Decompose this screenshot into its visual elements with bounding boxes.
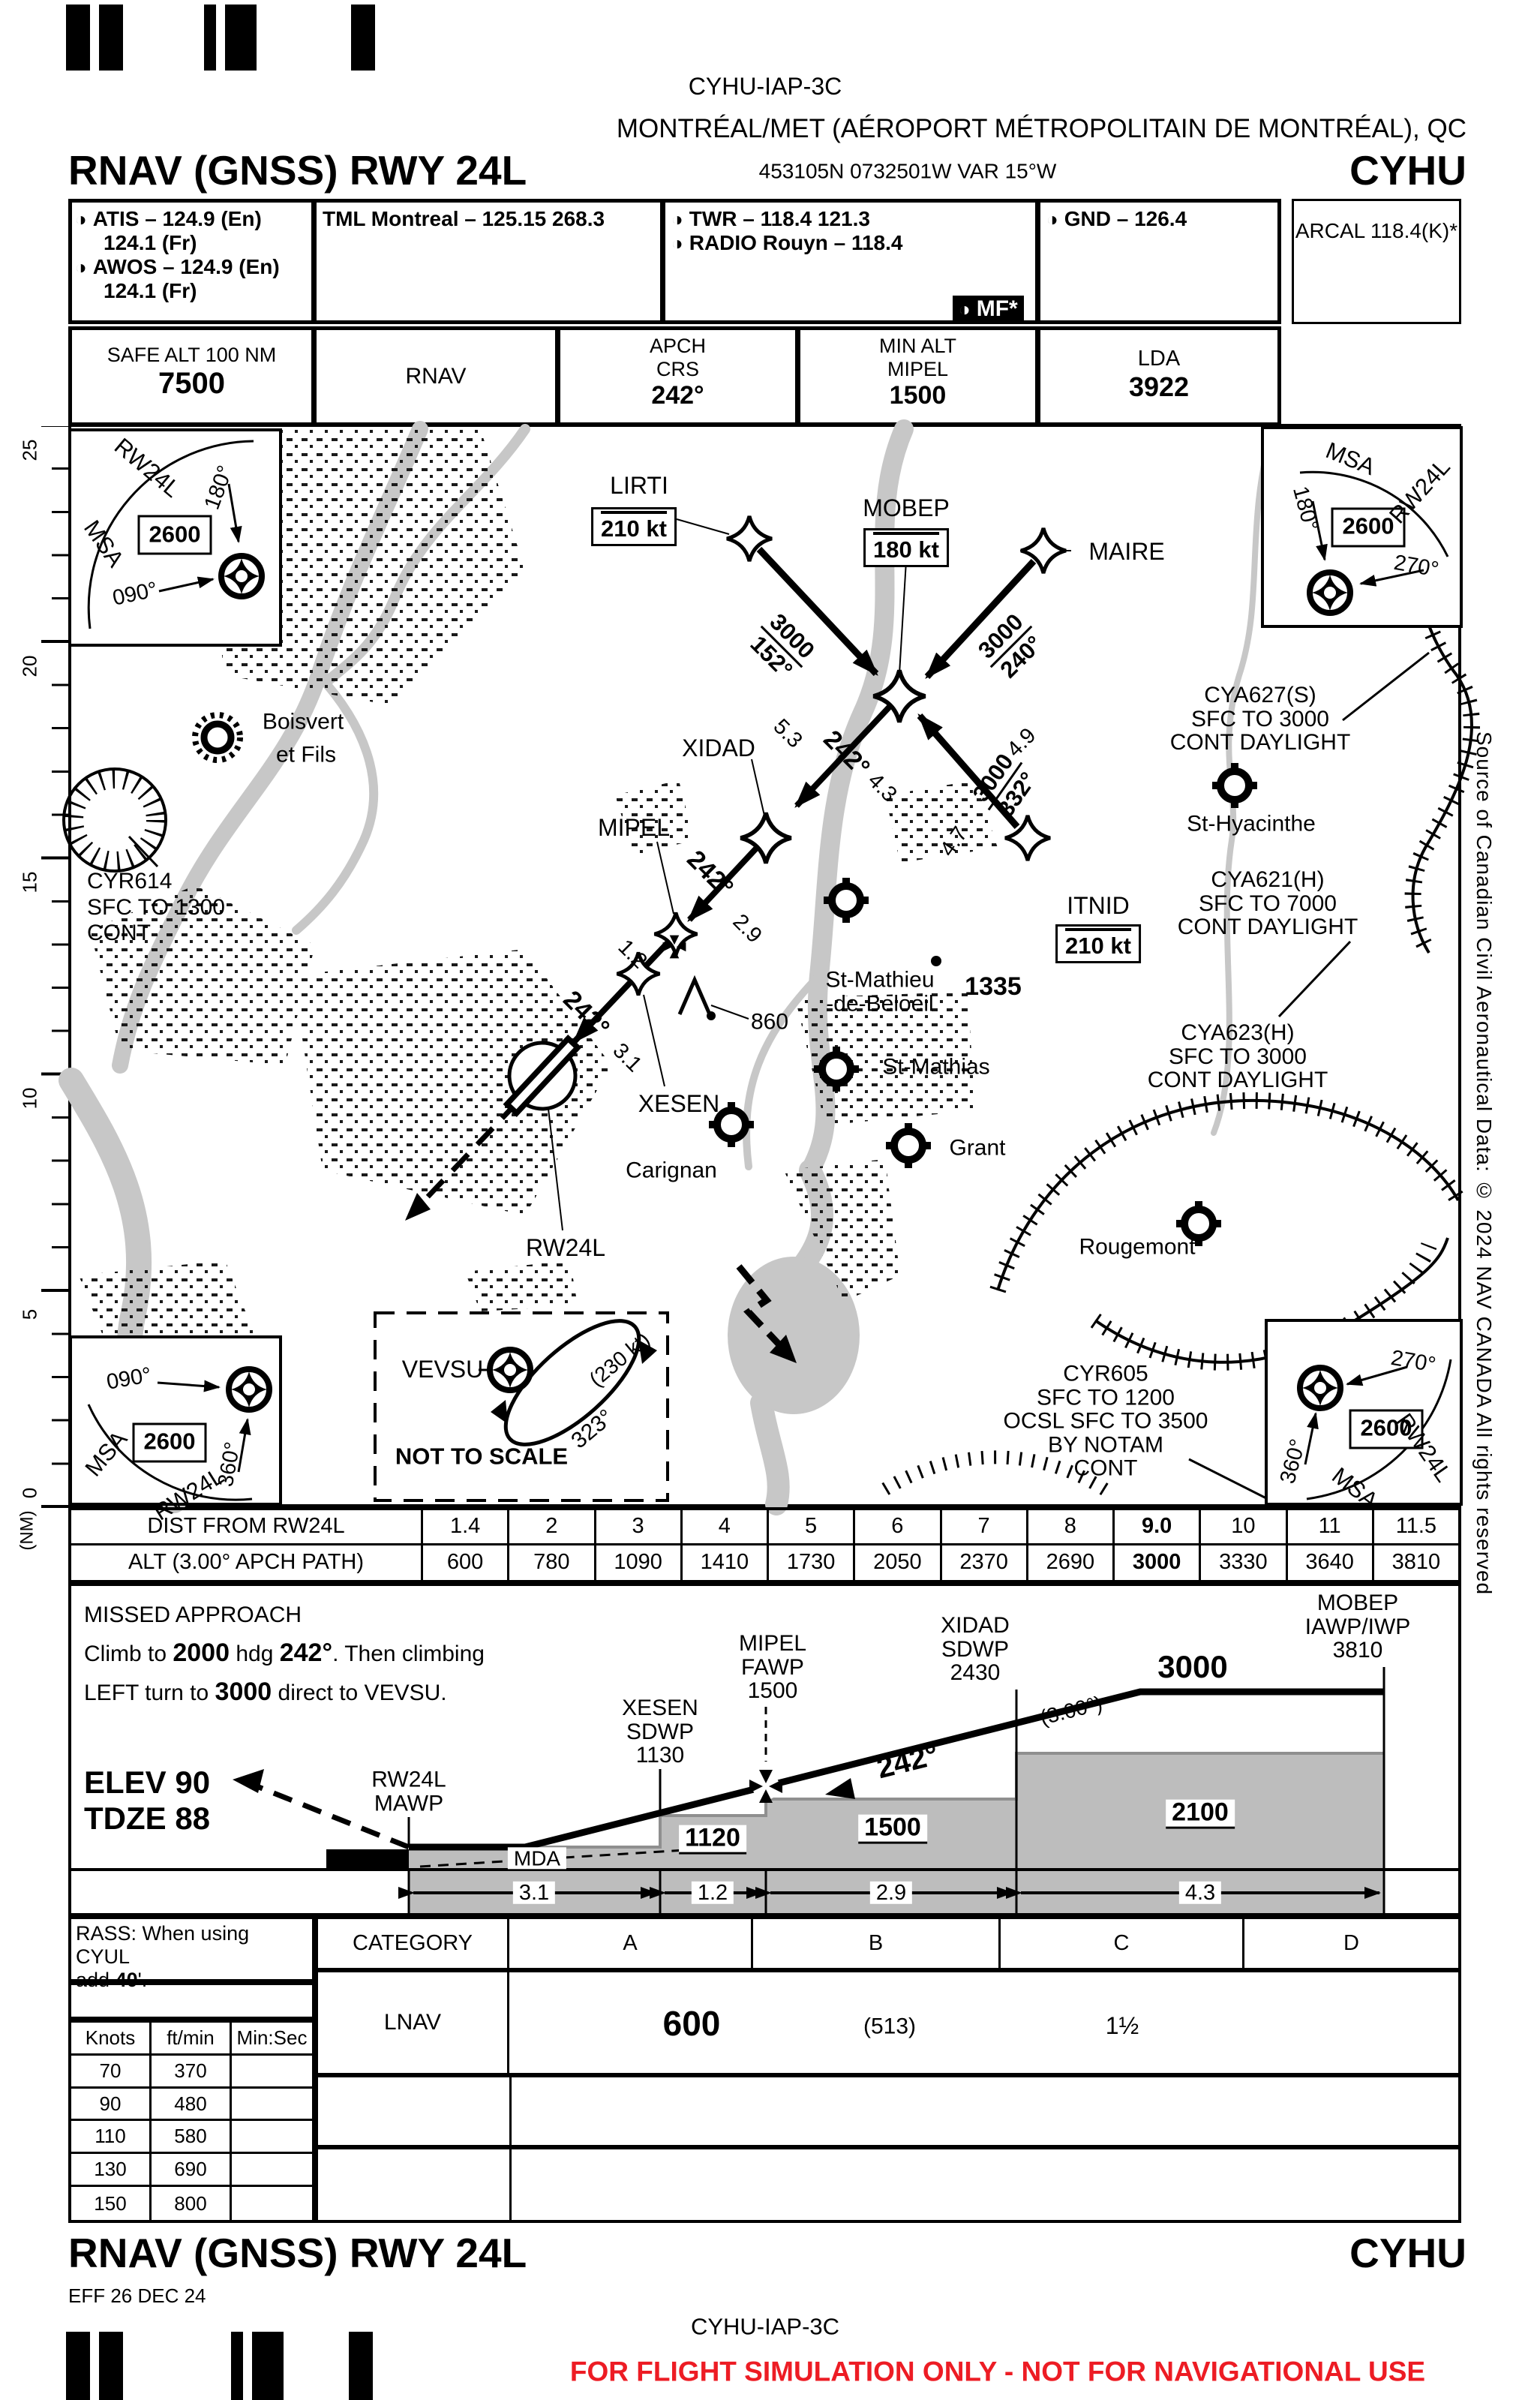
missed-approach-text: MISSED APPROACH Climb to 2000 hdg 242°. … [84,1598,485,1712]
cya623-label: CYA623(H)SFC TO 3000CONT DAYLIGHT [1148,1021,1328,1092]
category-header: CATEGORY [318,1919,509,1968]
lirti-speed-box: 210 kt [591,507,677,546]
alt-row-label: ALT (3.00° APCH PATH) [71,1545,421,1581]
msa-tr-alt: 2600 [1343,515,1394,539]
vevsu-waypoint-icon [490,1350,530,1390]
airport-rw24l-label: RW24L [526,1236,605,1261]
obstacle-860-label: 860 [751,1010,788,1034]
town-st-hyacinthe-icon [1212,763,1257,808]
rass-empty-box [68,1982,315,2020]
waypoint-lirti-label: LIRTI [610,473,668,499]
town-st-mathias-label: St-Mathias [882,1055,989,1079]
profile-mobep-label: MOBEPIAWP/IWP3810 [1305,1591,1411,1663]
spot-elevation-1335-dot [931,956,941,966]
effective-date: EFF 26 DEC 24 [68,2285,206,2308]
waypoint-xesen-label: XESEN [638,1092,719,1117]
footer-title: RNAV (GNSS) RWY 24L [68,2230,527,2277]
cyr614-label: CYR614SFC TO 1300CONT [87,869,225,947]
dist-alt-table: DIST FROM RW24L 1.4 2 3 4 5 6 7 8 9.0 10… [68,1507,1461,1583]
rate-of-descent-table: Knots ft/min Min:Sec 70 370 90 480 110 5… [68,2020,315,2223]
heliport-boisvert-label: Boisvert [263,710,344,734]
cya621-label: CYA621(H)SFC TO 7000CONT DAYLIGHT [1178,868,1358,939]
msa-inset-bottom-left [71,1337,281,1504]
lnav-vis: 1½ [1106,2014,1139,2039]
town-st-hyacinthe-label: St-Hyacinthe [1187,812,1316,836]
simulation-disclaimer: FOR FLIGHT SIMULATION ONLY - NOT FOR NAV… [570,2358,1425,2387]
lnav-hat: (513) [863,2014,916,2038]
waypoint-maire-label: MAIRE [1088,539,1164,565]
town-st-mathieu-label: St-Mathieu-de-Beloeil [825,969,934,1016]
waypoint-mipel-label: MIPEL [598,816,670,841]
mobep-speed-box: 180 kt [863,528,949,567]
msa-bl-alt: 2600 [144,1430,196,1455]
footer-icao: CYHU [1349,2230,1466,2277]
profile-alt-1120: 1120 [679,1825,746,1855]
town-grant-label: Grant [949,1136,1005,1160]
profile-level-alt: 3000 [1157,1651,1227,1684]
itnid-speed-box: 210 kt [1055,924,1141,963]
profile-mawp-label: RW24LMAWP [371,1768,446,1816]
category-c: C [1001,1919,1244,1968]
profile-mipel-label: MIPELFAWP1500 [739,1632,806,1703]
msa-tl-alt: 2600 [149,523,201,548]
rass-note-box: RASS: When using CYUL add 40'. [68,1916,315,1982]
profile-xidad-label: XIDADSDWP2430 [941,1614,1010,1685]
cyr605-label: CYR605SFC TO 1200OCSL SFC TO 3500 BY NOT… [1004,1362,1208,1480]
waypoint-vevsu-label: VEVSU [402,1357,483,1383]
waypoint-xidad-label: XIDAD [682,736,755,761]
vevsu-inset [375,1301,668,1500]
profile-alt-2100: 2100 [1166,1800,1235,1829]
waypoint-itnid-label: ITNID [1067,894,1130,919]
elev-label: ELEV 90 [84,1765,210,1801]
category-d: D [1244,1919,1458,1968]
dist-row-label: DIST FROM RW24L [71,1510,421,1545]
profile-alt-1500: 1500 [858,1815,927,1844]
heliport-boisvert-icon [195,715,240,760]
category-a: A [509,1919,753,1968]
band-dist-3: 2.9 [870,1882,912,1904]
spot-elevation-1335-label: 1335 [965,974,1022,1001]
approach-plate: CYHU-IAP-3C MONTRÉAL/MET (AÉROPORT MÉTRO… [0,0,1540,2400]
town-rougemont-label: Rougemont [1079,1235,1195,1259]
band-dist-1: 3.1 [513,1882,555,1904]
town-carignan-label: Carignan [626,1158,717,1182]
obstacle-860-icon [680,980,716,1020]
tdze-label: TDZE 88 [84,1801,210,1837]
plate-id-bottom: CYHU-IAP-3C [691,2315,839,2340]
copyright-sidebar: Source of Canadian Civil Aeronautical Da… [1472,731,1496,1595]
lnav-row-label: LNAV [318,1972,509,2073]
minima-table: CATEGORY A B C D LNAV 600 (513) 1½ [315,1916,1461,2223]
not-to-scale-label: NOT TO SCALE [395,1445,568,1470]
waypoint-mobep-label: MOBEP [863,496,950,521]
heliport-boisvert-label2: et Fils [276,743,336,767]
band-dist-4: 4.3 [1179,1882,1221,1904]
town-grant-icon [886,1123,931,1168]
category-b: B [753,1919,1001,1968]
cya627-label: CYA627(S)SFC TO 3000CONT DAYLIGHT [1170,683,1351,755]
lnav-mda: 600 [663,2005,721,2041]
mda-label: MDA [508,1847,566,1869]
profile-xesen-label: XESENSDWP1130 [622,1696,698,1768]
band-dist-2: 1.2 [692,1882,734,1904]
